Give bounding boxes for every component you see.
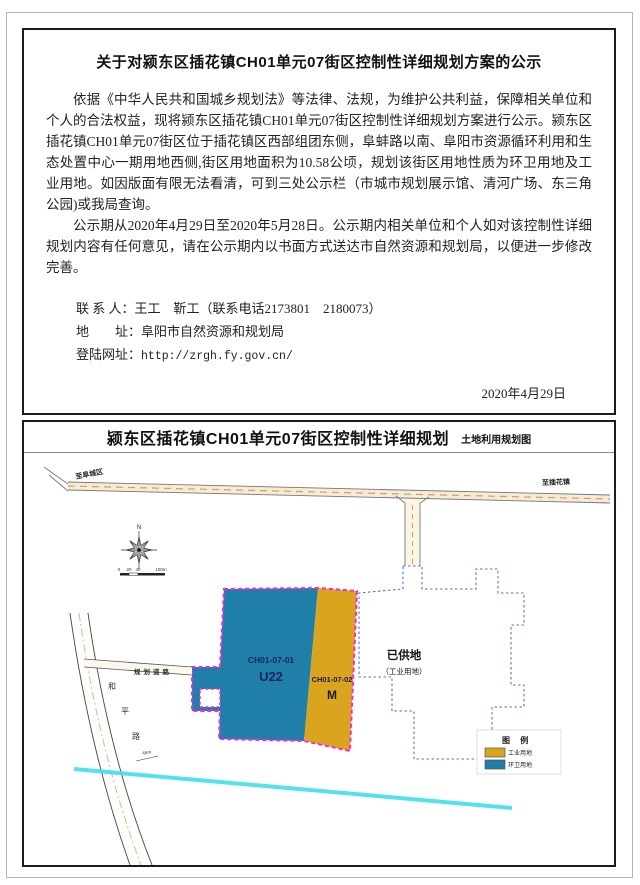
- zone-industrial-code: CH01-07-02: [312, 675, 353, 684]
- notice-document: 关于对颍东区插花镇CH01单元07街区控制性详细规划方案的公示 依据《中华人民共…: [22, 28, 616, 415]
- river-line: [74, 769, 512, 808]
- scale-segment-2: [129, 573, 138, 576]
- top-road-label-west: 至阜城区: [75, 467, 104, 481]
- planned-road-label: 规划道路: [134, 667, 172, 676]
- legend-swatch-sanitation: [485, 760, 505, 769]
- scale-segment-1: [120, 573, 129, 576]
- compass-center: [137, 548, 141, 552]
- contact-block: 联 系 人：王工 靳工（联系电话2173801 2180073） 地 址：阜阳市…: [76, 297, 592, 368]
- map-subtitle: 土地利用规划图: [461, 431, 531, 446]
- zone-industrial-use: M: [327, 688, 337, 702]
- road-width-note: 45m: [142, 749, 152, 755]
- contact-person-line: 联 系 人：王工 靳工（联系电话2173801 2180073）: [76, 297, 592, 320]
- scale-segment-3: [138, 573, 165, 576]
- compass-rose: N: [121, 525, 157, 569]
- scale-bar: 0 20 40 100m: [118, 567, 167, 576]
- zone-sanitation-code: CH01-07-01: [248, 655, 295, 665]
- map-title-band: 颍东区插花镇CH01单元07街区控制性详细规划 土地利用规划图: [24, 422, 614, 453]
- legend-title: 图 例: [502, 735, 532, 745]
- contact-person-label: 联 系 人：: [76, 301, 135, 316]
- contact-person-value: 王工 靳工（联系电话2173801 2180073）: [135, 301, 382, 316]
- scale-tick-100: 100m: [155, 567, 167, 572]
- road-width-dimension-line: [136, 756, 158, 761]
- compass-north-label: N: [137, 525, 141, 531]
- scale-tick-20: 20: [126, 567, 132, 572]
- planned-road: 规划道路: [84, 659, 192, 676]
- website-label: 登陆网址：: [76, 347, 141, 362]
- zone-sanitation: CH01-07-01 U22: [192, 588, 318, 741]
- plan-map-box: 颍东区插花镇CH01单元07街区控制性详细规划 土地利用规划图 至阜城区 至插花…: [22, 420, 616, 867]
- legend-swatch-industrial: [485, 748, 505, 757]
- heping-road-char-3: 路: [132, 731, 140, 741]
- access-road: [396, 496, 429, 566]
- notice-date: 2020年4月29日: [46, 383, 592, 402]
- top-road-surface: [68, 482, 610, 503]
- address-label: 地 址：: [76, 324, 141, 339]
- address-line: 地 址：阜阳市自然资源和规划局: [76, 320, 592, 343]
- map-legend: 图 例 工业用地 环卫用地: [477, 730, 561, 774]
- address-value: 阜阳市自然资源和规划局: [141, 324, 284, 339]
- supplied-parcel-note: （工业用地）: [382, 666, 427, 676]
- boundary-notch: [200, 689, 220, 707]
- website-url: http://zrgh.fy.gov.cn/: [141, 350, 293, 363]
- notice-body: 依据《中华人民共和国城乡规划法》等法律、法规，为维护公共利益，保障相关单位和个人…: [46, 89, 592, 278]
- legend-label-industrial: 工业用地: [508, 749, 532, 757]
- zone-sanitation-use: U22: [259, 669, 283, 684]
- heping-road-char-1: 和: [108, 682, 116, 691]
- top-road: 至阜城区 至插花镇: [44, 467, 610, 503]
- heping-road-char-2: 平: [121, 707, 129, 716]
- legend-label-sanitation: 环卫用地: [508, 761, 532, 769]
- notice-paragraph-2: 公示期从2020年4月29日至2020年5月28日。公示期内相关单位和个人如对该…: [46, 215, 592, 278]
- top-road-label-east: 至插花镇: [542, 477, 570, 487]
- land-use-map: 至阜城区 至插花镇 已供地 （工业用地） CH01-07-01 U22 C: [24, 453, 614, 865]
- public-notice-page: { "notice": { "title": "关于对颍东区插花镇CH01单元0…: [0, 0, 640, 885]
- supplied-parcel-name: 已供地: [387, 648, 422, 662]
- scale-tick-40: 40: [135, 567, 141, 572]
- map-title: 颍东区插花镇CH01单元07街区控制性详细规划: [107, 425, 449, 449]
- heping-road: 和 平 路 45m: [70, 613, 158, 865]
- scale-tick-0: 0: [118, 567, 121, 572]
- notice-title: 关于对颍东区插花镇CH01单元07街区控制性详细规划方案的公示: [46, 51, 592, 72]
- website-line: 登陆网址：http://zrgh.fy.gov.cn/: [76, 343, 592, 368]
- notice-paragraph-1: 依据《中华人民共和国城乡规划法》等法律、法规，为维护公共利益，保障相关单位和个人…: [46, 89, 592, 215]
